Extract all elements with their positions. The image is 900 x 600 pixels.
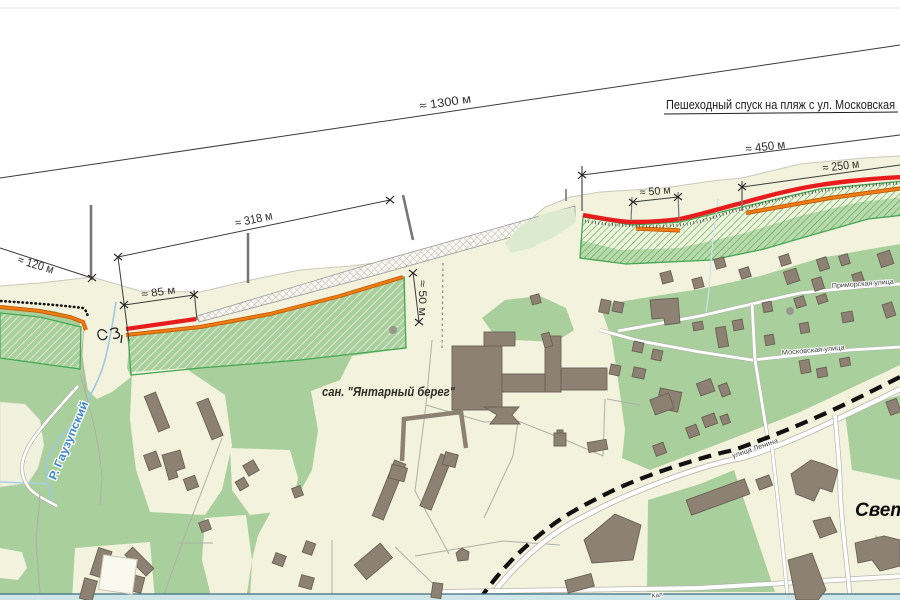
svg-text:Светл: Светл: [855, 500, 900, 521]
svg-text:≈ 50 м: ≈ 50 м: [416, 280, 428, 316]
svg-text:сан. "Янтарный берег": сан. "Янтарный берег": [322, 384, 456, 399]
svg-text:Пешеходный спуск на пляж с ул.: Пешеходный спуск на пляж с ул. Московска…: [666, 97, 895, 112]
